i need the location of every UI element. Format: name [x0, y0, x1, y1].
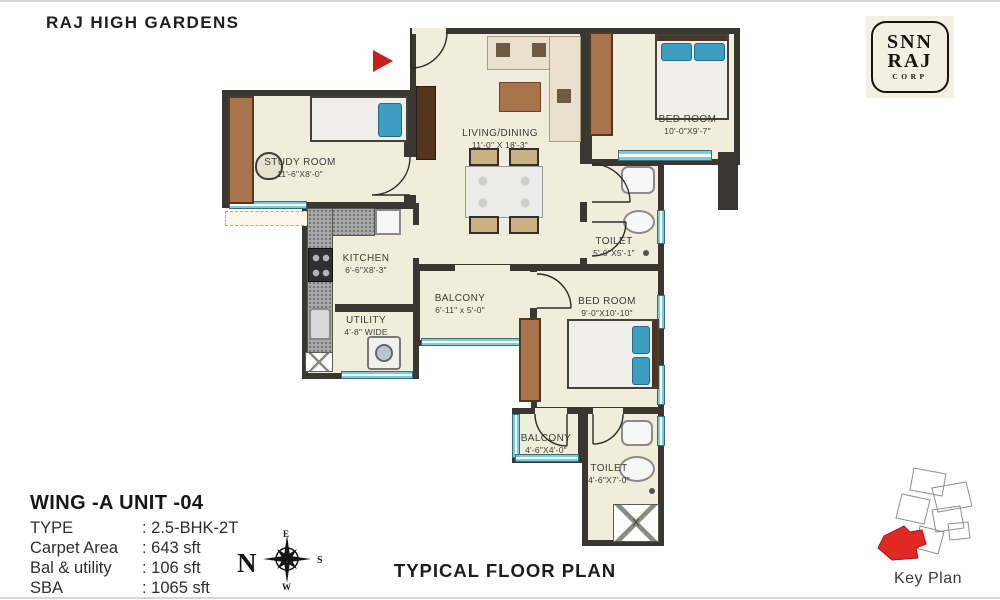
bedroom-1-pillow	[694, 43, 725, 61]
bedroom-1-wardrobe	[589, 32, 613, 136]
shaft-x-label: X	[614, 505, 658, 541]
compass-star-main	[263, 535, 311, 583]
floor-plan: X STUDY ROOM 11'-6"X8'-0" LIVING/DINING …	[215, 10, 750, 555]
utility-label: UTILITY 4'-8" WIDE	[325, 315, 407, 337]
utility-shaft	[305, 352, 333, 372]
coffee-table	[499, 82, 541, 112]
bedroom-1-bed	[655, 34, 729, 120]
living-dining-label: LIVING/DINING 11'-0" X 18'-3"	[440, 128, 560, 150]
bedroom-1-door-opening	[580, 164, 592, 202]
kitchen-counter-left	[307, 208, 333, 372]
bedroom-2-label: BED ROOM 9'-0"X10'-10"	[552, 296, 662, 318]
project-title: RAJ HIGH GARDENS	[46, 13, 239, 33]
utility-window	[341, 371, 413, 379]
dining-chair	[469, 216, 499, 234]
dining-chair	[509, 148, 539, 166]
spec-value: : 643 sft	[142, 538, 201, 558]
key-plan-block	[948, 522, 970, 540]
kitchen-label: KITCHEN 6'-6"X8'-3"	[325, 253, 407, 275]
spec-label: Carpet Area	[30, 538, 142, 558]
balcony-2-label: BALCONY 4'-6"X4'-0"	[510, 433, 582, 455]
key-plan-label: Key Plan	[868, 570, 988, 588]
dining-chair	[509, 216, 539, 234]
toilet-2-washbasin	[621, 420, 653, 446]
washing-machine-drum	[375, 344, 393, 362]
bedroom-1-headboard	[657, 36, 727, 41]
spec-label: TYPE	[30, 518, 142, 538]
balcony-1-railing	[421, 338, 529, 346]
spec-value: : 1065 sft	[142, 578, 210, 598]
compass-rose: N E S W	[235, 528, 345, 592]
unit-info: WING -A UNIT -04 TYPE : 2.5-BHK-2T Carpe…	[30, 492, 270, 598]
toilet-1-wc	[623, 210, 655, 234]
sofa-pillow	[496, 43, 510, 57]
balcony-2-door-opening	[535, 408, 567, 414]
wing-unit-heading: WING -A UNIT -04	[30, 492, 270, 515]
washing-machine	[367, 336, 401, 370]
study-door-opening	[404, 157, 416, 195]
spec-row-carpet-area: Carpet Area : 643 sft	[30, 538, 270, 558]
bedroom-2-door-opening	[530, 272, 538, 308]
toilet-2-door-opening	[593, 408, 623, 414]
spec-row-bal-utility: Bal & utility : 106 sft	[30, 558, 270, 578]
logo-text-corp: CORP	[892, 72, 927, 81]
entrance-opening	[412, 28, 446, 34]
toilet-1-window	[657, 210, 665, 244]
bedroom-1-window	[618, 150, 712, 161]
study-room-label: STUDY ROOM 11'-6"X8'-0"	[240, 157, 360, 179]
toilet-2-label: TOILET 4'-6"X7'-0"	[578, 463, 640, 485]
balcony-1-opening	[455, 265, 510, 271]
bedroom-2-headboard	[652, 321, 657, 387]
spec-label: SBA	[30, 578, 142, 598]
spec-row-sba: SBA : 1065 sft	[30, 578, 270, 598]
bedroom-1-label: BED ROOM 10'-0"X9'-7"	[635, 114, 740, 136]
logo-text-raj: RAJ	[888, 52, 933, 71]
kitchen-utility-divider-wall	[335, 304, 413, 312]
bedroom-2-pillow	[632, 326, 650, 354]
study-wardrobe-desk	[228, 96, 254, 204]
spec-label: Bal & utility	[30, 558, 142, 578]
toilet-2-shower-icon	[649, 488, 655, 494]
dining-chair	[469, 148, 499, 166]
toilet-1-label: TOILET 5'-0"X5'-1"	[583, 236, 645, 258]
toilet-1-washbasin	[621, 166, 655, 194]
compass-east-label: E	[283, 529, 289, 539]
spec-value: : 106 sft	[142, 558, 201, 578]
study-bed	[310, 96, 408, 142]
key-plan-block	[896, 494, 930, 524]
top-edge-line	[0, 0, 1000, 2]
toilet-2-window	[657, 416, 665, 446]
logo-frame: SNN RAJ CORP	[871, 21, 949, 93]
tv-unit	[416, 86, 436, 160]
exterior-wall-stub	[718, 152, 738, 210]
balcony-1-label: BALCONY 6'-11" x 5'-0"	[415, 293, 505, 315]
key-plan-highlighted-unit	[878, 526, 926, 560]
developer-logo: SNN RAJ CORP	[866, 16, 954, 98]
dining-table	[465, 166, 543, 218]
bedroom-2-bed	[567, 319, 659, 389]
spec-row-type: TYPE : 2.5-BHK-2T	[30, 518, 270, 538]
sofa-vertical	[549, 36, 581, 142]
toilet-2-shaft: X	[613, 504, 659, 542]
entrance-arrow-icon	[373, 50, 393, 72]
sofa-pillow	[557, 89, 571, 103]
kitchen-opening	[410, 225, 419, 258]
compass-south-label: S	[317, 555, 323, 566]
balcony-2-railing-bottom	[515, 454, 579, 462]
compass-north-label: N	[237, 548, 257, 578]
key-plan-block	[910, 468, 946, 496]
compass-west-label: W	[282, 582, 291, 592]
kitchen-fridge	[375, 209, 401, 235]
bedroom-2-pillow	[632, 357, 650, 385]
study-bed-pillow	[378, 103, 402, 137]
bedroom-1-pillow	[661, 43, 692, 61]
floor-plan-page: { "page": { "title": "RAJ HIGH GARDENS",…	[0, 0, 1000, 600]
spec-value: : 2.5-BHK-2T	[142, 518, 238, 538]
plan-type-title: TYPICAL FLOOR PLAN	[350, 560, 660, 582]
study-window-ledge	[225, 211, 309, 226]
bedroom-2-wardrobe	[519, 318, 541, 402]
sofa-pillow	[532, 43, 546, 57]
key-plan-map	[868, 462, 988, 570]
